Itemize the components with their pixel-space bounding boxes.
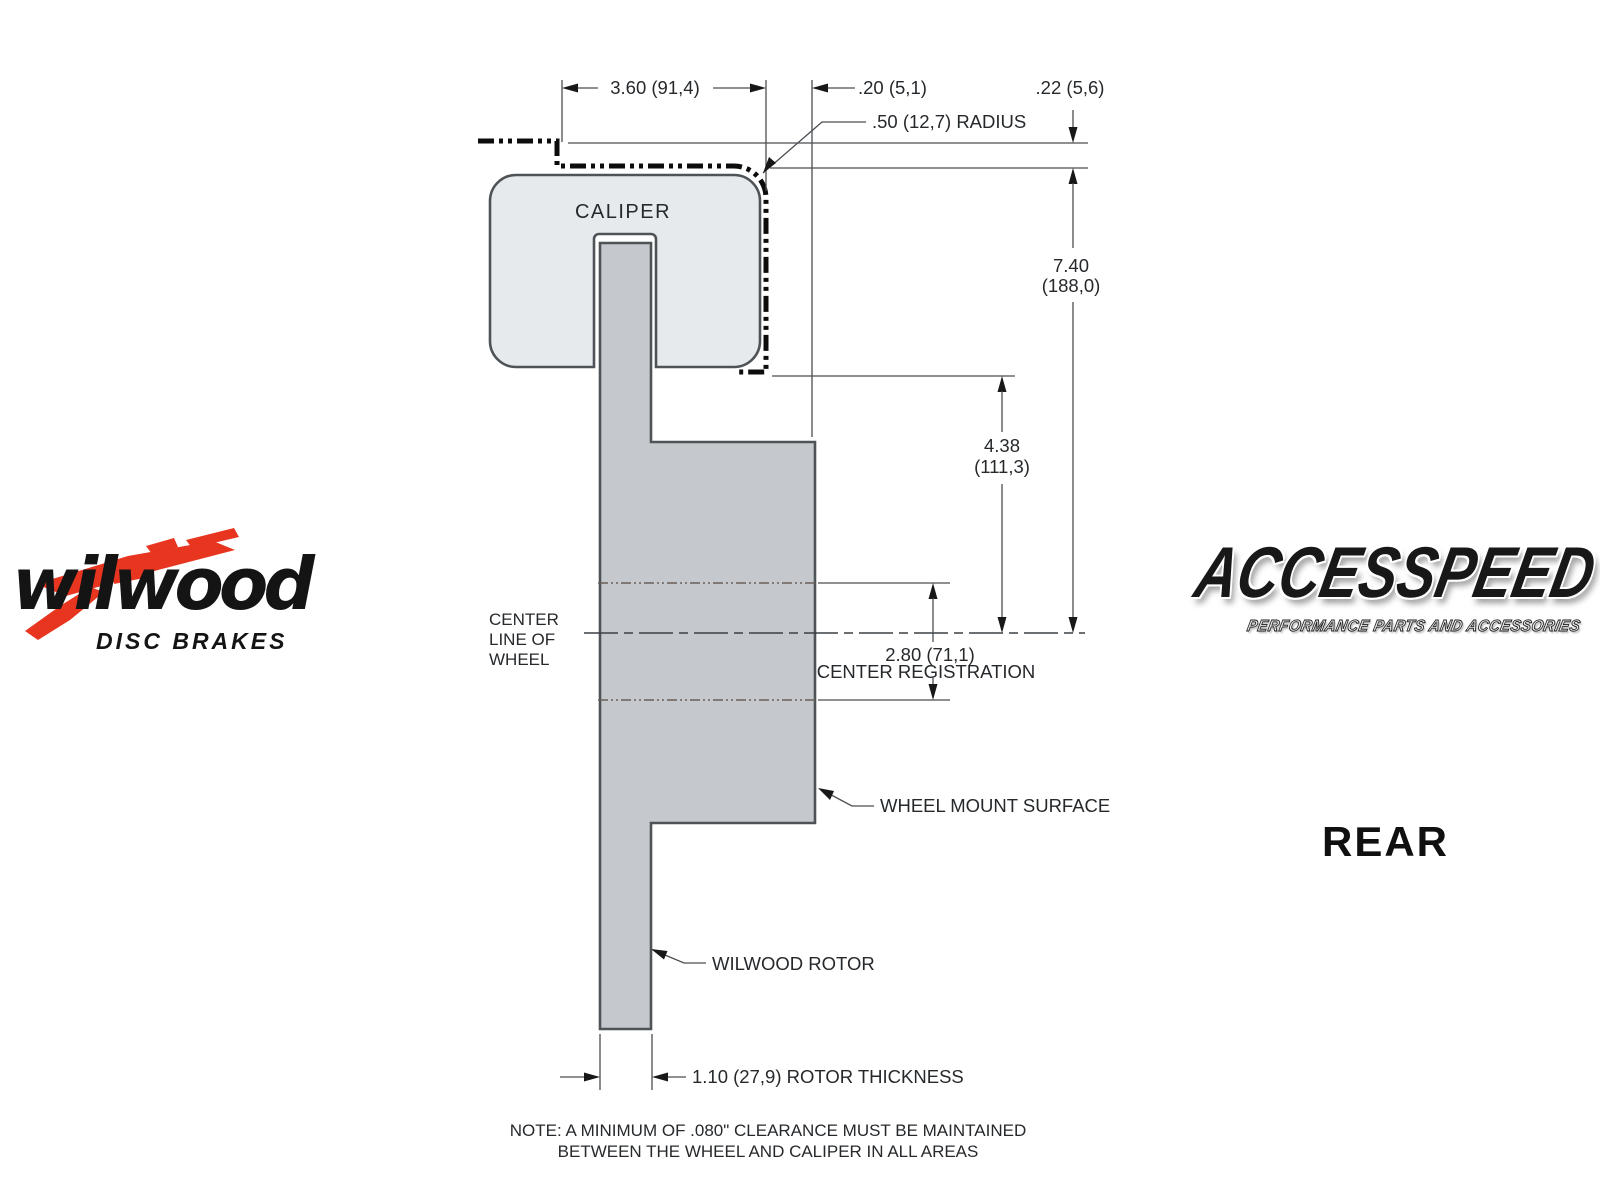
radius-label: .50 (12,7) RADIUS xyxy=(872,111,1026,132)
thickness-label: 1.10 (27,9) ROTOR THICKNESS xyxy=(692,1066,964,1087)
dim-740-arrow-down xyxy=(1069,617,1078,633)
caliper-label: CALIPER xyxy=(575,201,671,223)
dim-280-arrow-down xyxy=(929,684,938,700)
note-line-2: BETWEEN THE WHEEL AND CALIPER IN ALL ARE… xyxy=(558,1142,979,1161)
dim-280-caption: CENTER REGISTRATION xyxy=(817,661,1036,682)
thickness-arrow-right xyxy=(652,1073,668,1082)
centerline-label-1: CENTER xyxy=(489,610,559,629)
centerline-label-3: WHEEL xyxy=(489,650,549,669)
accesspeed-wordmark: ACCESSPEED xyxy=(1189,532,1600,614)
dim-740-arrow-up xyxy=(1069,168,1078,184)
dim-438-label-mm: (111,3) xyxy=(974,456,1030,477)
dim-360-arrow-right xyxy=(750,84,766,93)
accesspeed-tagline: PERFORMANCE PARTS AND ACCESSORIES xyxy=(1245,618,1581,636)
radius-arrow xyxy=(763,157,776,173)
wilwood-tagline: DISC BRAKES xyxy=(96,628,287,655)
wilwood-logo: wilwood DISC BRAKES xyxy=(8,512,328,662)
diagram-page: 3.60 (91,4) .20 (5,1) .22 (5,6) .50 (12,… xyxy=(0,0,1600,1200)
wilwood-wordmark: wilwood xyxy=(12,542,310,626)
wheel-mount-arrow xyxy=(818,788,834,800)
note-line-1: NOTE: A MINIMUM OF .080" CLEARANCE MUST … xyxy=(510,1121,1026,1140)
rotor-label: WILWOOD ROTOR xyxy=(712,953,875,974)
dim-438-label-in: 4.38 xyxy=(984,435,1020,456)
dim-438-arrow-up xyxy=(998,376,1007,392)
radius-leader xyxy=(763,122,866,173)
dim-740-label-mm: (188,0) xyxy=(1042,275,1101,296)
thickness-arrow-left xyxy=(584,1073,600,1082)
wheel-mount-label: WHEEL MOUNT SURFACE xyxy=(880,795,1110,816)
dim-20-label: .20 (5,1) xyxy=(858,77,927,98)
dim-360-arrow-left xyxy=(562,84,578,93)
dim-20-arrow xyxy=(812,84,828,93)
dim-360-label: 3.60 (91,4) xyxy=(610,77,699,98)
centerline-label-2: LINE OF xyxy=(489,630,555,649)
dim-280-arrow-up xyxy=(929,583,938,599)
accesspeed-logo: ACCESSPEED PERFORMANCE PARTS AND ACCESSO… xyxy=(1205,536,1600,656)
dim-22-label: .22 (5,6) xyxy=(1036,77,1105,98)
dim-740-label-in: 7.40 xyxy=(1053,255,1089,276)
dim-438-arrow-down xyxy=(998,617,1007,633)
view-label-rear: REAR xyxy=(1322,818,1449,866)
rotor-arrow xyxy=(651,949,668,960)
dim-22-arrow-down xyxy=(1069,127,1078,143)
